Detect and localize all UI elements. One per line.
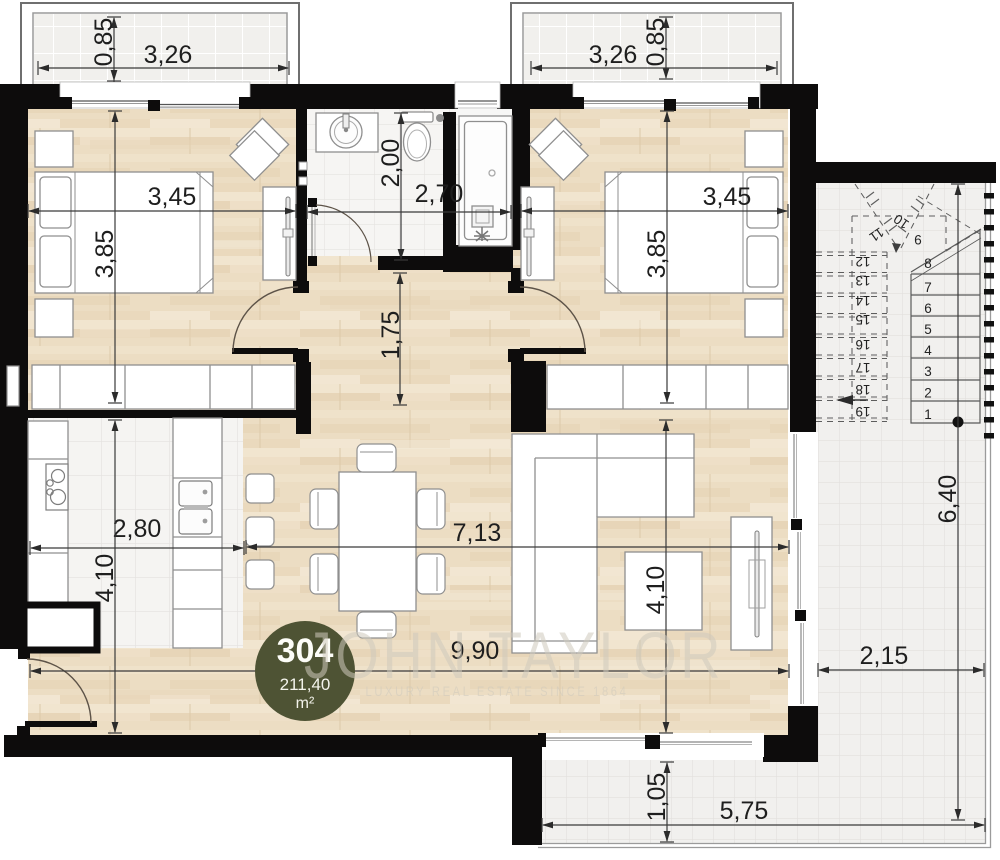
svg-text:2,70: 2,70 (415, 180, 464, 208)
svg-text:3,45: 3,45 (148, 183, 197, 211)
svg-text:13: 13 (855, 273, 870, 288)
svg-text:9: 9 (914, 232, 922, 247)
svg-text:5,75: 5,75 (720, 797, 769, 825)
svg-text:16: 16 (855, 337, 870, 352)
svg-text:4,10: 4,10 (91, 554, 119, 603)
svg-text:4,10: 4,10 (642, 566, 670, 615)
svg-text:6: 6 (924, 301, 932, 316)
svg-text:2,00: 2,00 (377, 139, 405, 188)
svg-text:3,45: 3,45 (703, 183, 752, 211)
svg-text:3,85: 3,85 (91, 230, 119, 279)
svg-text:1,05: 1,05 (643, 773, 671, 822)
svg-text:2,15: 2,15 (860, 642, 909, 670)
svg-text:2: 2 (924, 386, 932, 401)
svg-text:0,85: 0,85 (90, 18, 118, 67)
svg-text:12: 12 (855, 254, 870, 269)
svg-text:LUXURY REAL ESTATE SINCE 1864: LUXURY REAL ESTATE SINCE 1864 (366, 684, 629, 699)
svg-text:17: 17 (855, 360, 870, 375)
svg-text:19: 19 (855, 404, 870, 419)
svg-text:1: 1 (924, 407, 932, 422)
svg-text:3: 3 (924, 364, 932, 379)
svg-text:6,40: 6,40 (934, 475, 962, 524)
svg-text:18: 18 (855, 382, 870, 397)
svg-text:15: 15 (855, 312, 870, 327)
svg-text:5: 5 (924, 322, 932, 337)
svg-text:1,75: 1,75 (377, 311, 405, 360)
svg-text:14: 14 (855, 293, 871, 308)
svg-text:3,26: 3,26 (589, 41, 638, 69)
svg-text:m²: m² (296, 695, 315, 712)
svg-text:7,13: 7,13 (453, 519, 502, 547)
svg-text:JOHN TAYLOR: JOHN TAYLOR (304, 618, 724, 692)
svg-text:2,80: 2,80 (113, 515, 162, 543)
svg-text:3,26: 3,26 (144, 41, 193, 69)
svg-text:0,85: 0,85 (642, 18, 670, 67)
svg-text:8: 8 (924, 256, 932, 271)
svg-text:3,85: 3,85 (643, 230, 671, 279)
svg-text:4: 4 (924, 343, 932, 358)
svg-text:7: 7 (924, 280, 932, 295)
